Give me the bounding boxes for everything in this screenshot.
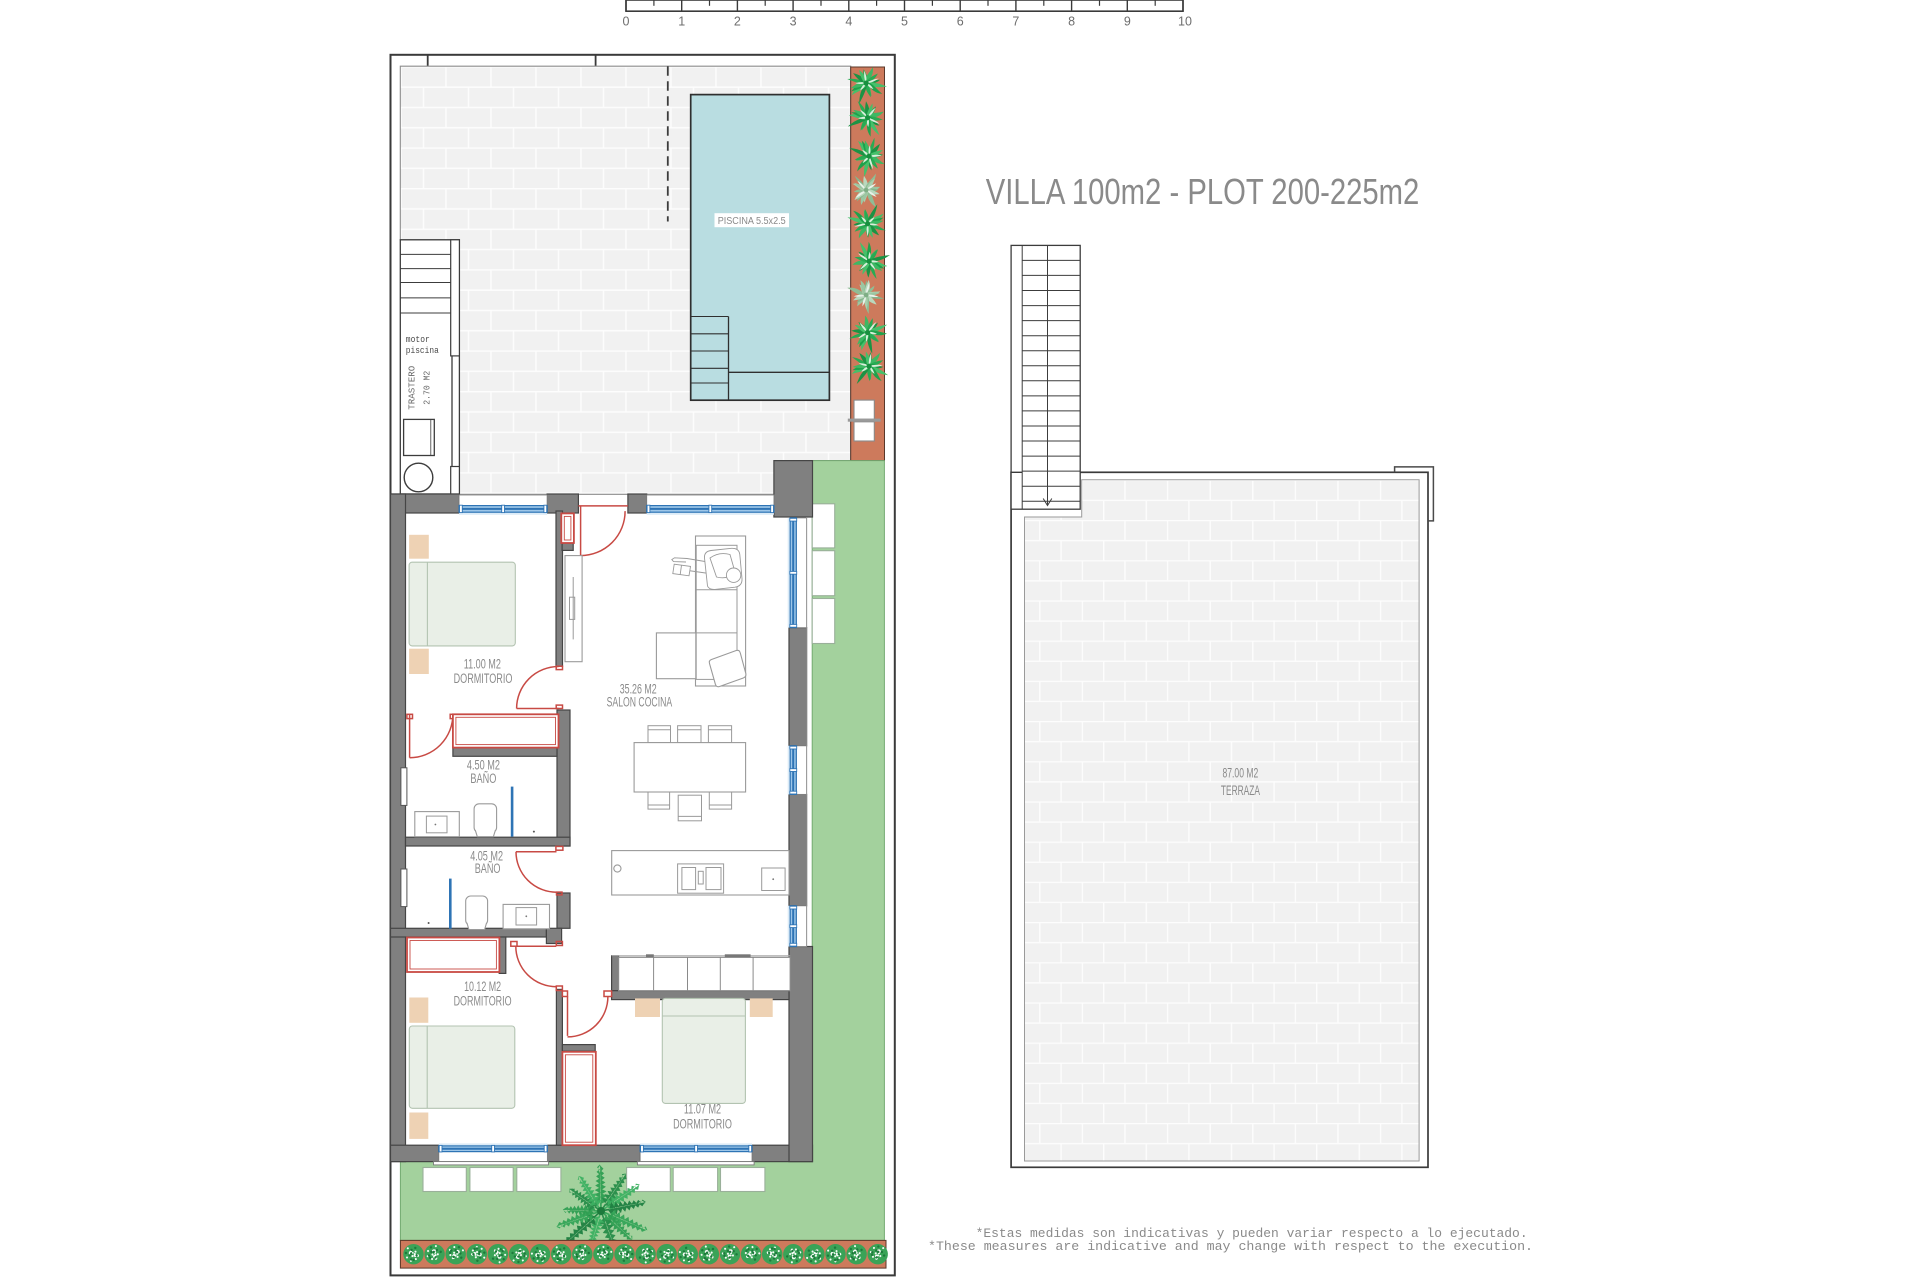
svg-text:5: 5 <box>901 15 908 29</box>
svg-text:2.70 M2: 2.70 M2 <box>422 370 433 404</box>
svg-text:BAÑO: BAÑO <box>470 771 496 786</box>
svg-text:DORMITORIO: DORMITORIO <box>673 1116 732 1131</box>
svg-text:PISCINA 5.5x2.5: PISCINA 5.5x2.5 <box>718 216 786 227</box>
svg-text:DORMITORIO: DORMITORIO <box>454 671 513 686</box>
svg-text:*These measures are indicative: *These measures are indicative and may c… <box>928 1239 1533 1254</box>
svg-text:BAÑO: BAÑO <box>475 861 501 876</box>
svg-text:SALON COCINA: SALON COCINA <box>607 695 673 710</box>
svg-text:TERRAZA: TERRAZA <box>1221 783 1260 798</box>
svg-text:4: 4 <box>845 15 852 29</box>
svg-text:VILLA 100m2 - PLOT 200-225m2: VILLA 100m2 - PLOT 200-225m2 <box>986 171 1420 212</box>
svg-text:11.00 M2: 11.00 M2 <box>464 656 501 671</box>
svg-text:piscina: piscina <box>406 345 439 356</box>
svg-text:7: 7 <box>1012 15 1019 29</box>
svg-text:10.12 M2: 10.12 M2 <box>464 979 501 994</box>
svg-text:0: 0 <box>623 15 630 29</box>
svg-text:87.00 M2: 87.00 M2 <box>1223 765 1259 780</box>
svg-text:9: 9 <box>1124 15 1131 29</box>
svg-text:6: 6 <box>957 15 964 29</box>
svg-text:TRASTERO: TRASTERO <box>407 365 418 409</box>
svg-text:3: 3 <box>790 15 797 29</box>
svg-text:10: 10 <box>1178 15 1192 29</box>
svg-text:motor: motor <box>406 334 430 345</box>
svg-text:DORMITORIO: DORMITORIO <box>454 994 512 1009</box>
svg-text:8: 8 <box>1068 15 1075 29</box>
svg-text:11.07 M2: 11.07 M2 <box>684 1102 721 1117</box>
svg-text:2: 2 <box>734 15 741 29</box>
svg-text:1: 1 <box>678 15 685 29</box>
